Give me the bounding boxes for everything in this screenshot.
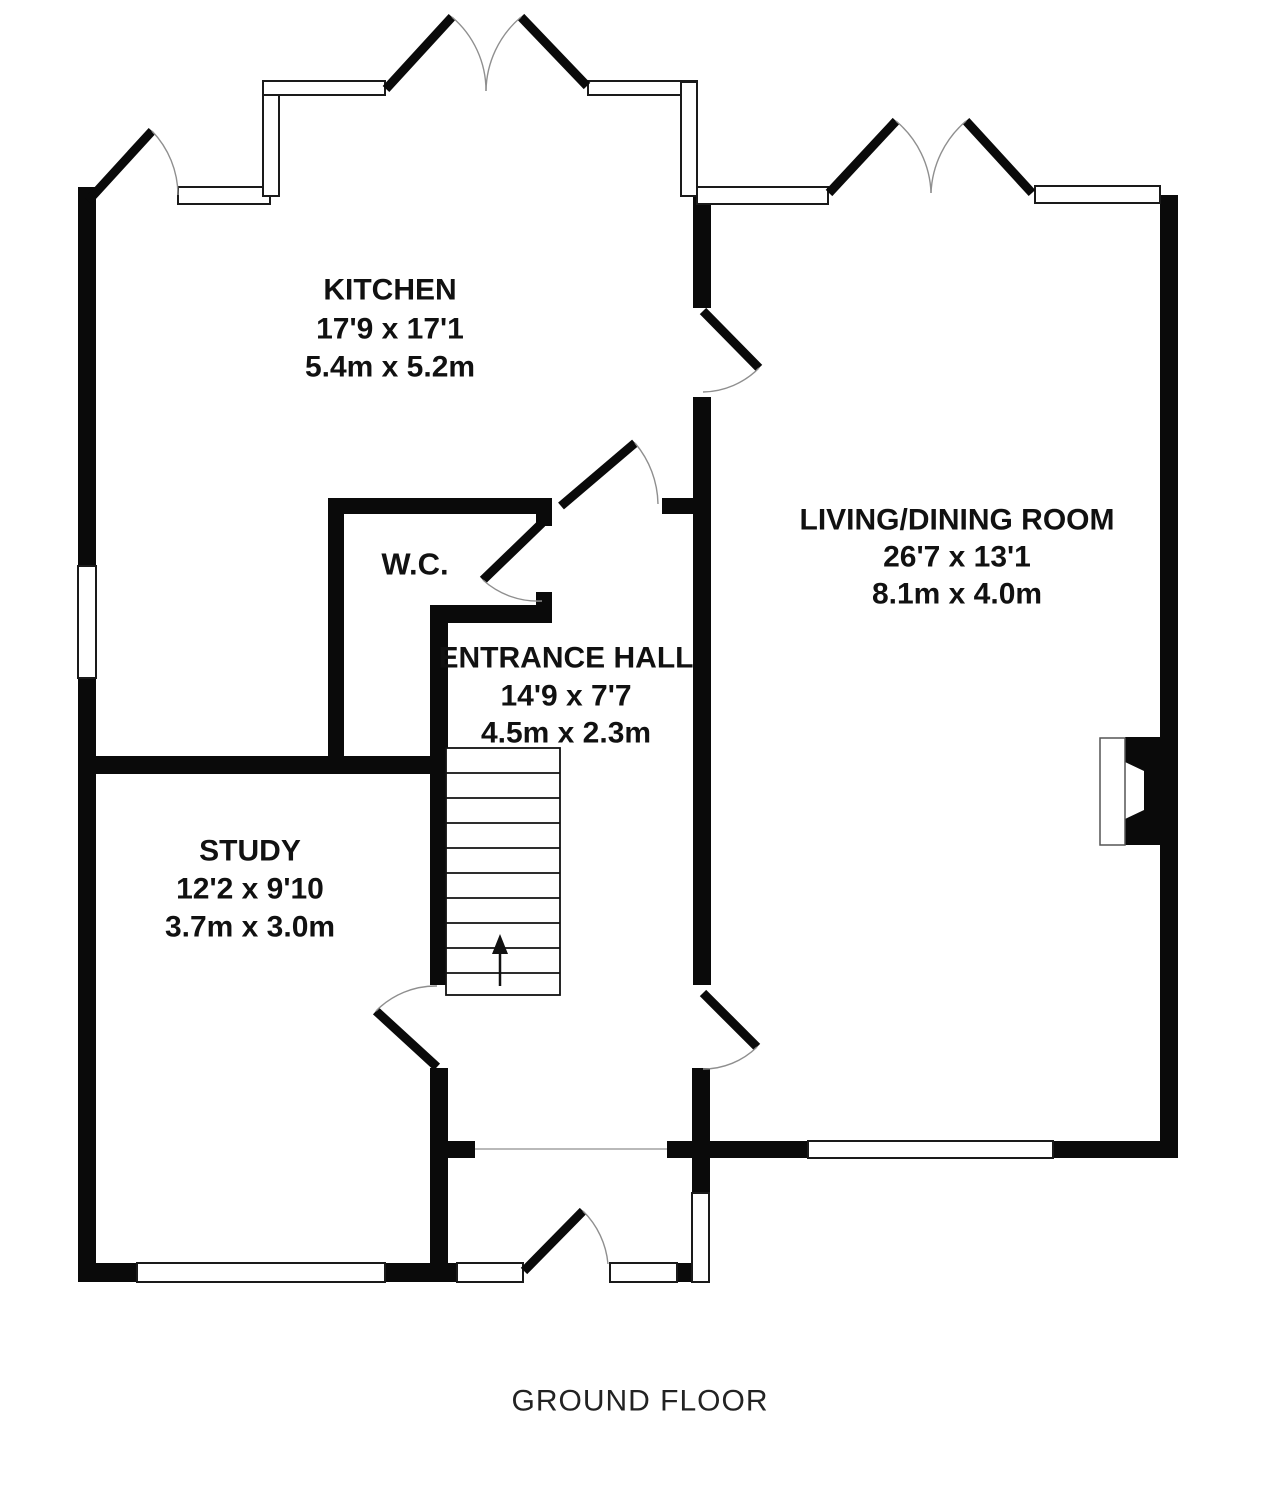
- wall-living-bottom-right: [1053, 1141, 1178, 1158]
- kitchen-size-metric: 5.4m x 5.2m: [305, 351, 475, 384]
- wall-bottom-study-right: [385, 1263, 457, 1282]
- entrance-hall-size-metric: 4.5m x 2.3m: [481, 717, 651, 750]
- wall-living-bottom-left: [693, 1141, 808, 1158]
- wall-kitchen-door-stub: [662, 498, 693, 514]
- wall-left-upper: [78, 187, 96, 566]
- study-label: STUDY 12'2 x 9'10 3.7m x 3.0m: [165, 835, 335, 944]
- wall-divider-upper: [693, 195, 711, 308]
- wc-label: W.C.: [381, 547, 448, 582]
- fireplace-opening: [1125, 762, 1144, 819]
- fireplace-hearth: [1100, 738, 1125, 845]
- living-dining-size-metric: 8.1m x 4.0m: [872, 578, 1042, 611]
- wall-wc-top: [328, 498, 552, 514]
- living-french-doors: [829, 121, 1032, 193]
- living-dining-size-imperial: 26'7 x 13'1: [883, 541, 1031, 574]
- chimney-breast: [1100, 737, 1160, 845]
- floor-plan-drawing: KITCHEN 17'9 x 17'1 5.4m x 5.2m LIVING/D…: [0, 0, 1280, 1503]
- entrance-hall-label: ENTRANCE HALL 14'9 x 7'7 4.5m x 2.3m: [439, 642, 694, 750]
- kitchen-exterior-door: [88, 131, 178, 201]
- wall-porch-stub-right: [667, 1141, 708, 1158]
- wc-door: [483, 523, 542, 601]
- entrance-hall-size-imperial: 14'9 x 7'7: [500, 680, 631, 713]
- wall-bottom-study-left: [96, 1263, 137, 1282]
- window-bay-left-side: [263, 82, 279, 196]
- study-size-metric: 3.7m x 3.0m: [165, 911, 335, 944]
- wall-wc-left: [328, 514, 344, 756]
- wall-hall-left-lower: [430, 1068, 448, 1282]
- kitchen-living-door: [703, 311, 759, 392]
- staircase: [446, 748, 560, 995]
- plan-title: GROUND FLOOR: [511, 1385, 768, 1418]
- study-name: STUDY: [199, 835, 301, 868]
- window-kitchen-left: [78, 566, 96, 678]
- wall-left-lower: [78, 678, 96, 1282]
- study-size-imperial: 12'2 x 9'10: [176, 873, 324, 906]
- floor-plan-page: KITCHEN 17'9 x 17'1 5.4m x 5.2m LIVING/D…: [0, 0, 1280, 1503]
- kitchen-name: KITCHEN: [323, 274, 456, 307]
- window-bay-top-left: [263, 81, 385, 95]
- kitchen-label: KITCHEN 17'9 x 17'1 5.4m x 5.2m: [305, 274, 475, 384]
- wall-hall-corner: [430, 605, 552, 623]
- room-labels: KITCHEN 17'9 x 17'1 5.4m x 5.2m LIVING/D…: [165, 274, 1115, 1418]
- wall-porch-stub-left: [430, 1141, 475, 1158]
- wall-right: [1160, 195, 1178, 1158]
- window-living-top: [1035, 186, 1160, 203]
- window-porch-right: [610, 1263, 677, 1282]
- kitchen-hall-door: [561, 443, 658, 506]
- window-kitchen-top-left: [178, 187, 270, 204]
- living-dining-name: LIVING/DINING ROOM: [800, 504, 1115, 537]
- study-door: [376, 986, 437, 1067]
- window-living-bottom: [808, 1141, 1053, 1158]
- wc-name: W.C.: [381, 547, 448, 582]
- wall-wc-door-stub-bottom: [536, 592, 552, 605]
- entrance-hall-name: ENTRANCE HALL: [439, 642, 694, 675]
- front-door: [524, 1211, 608, 1271]
- window-porch-side: [692, 1193, 709, 1282]
- wall-study-top: [96, 756, 446, 774]
- wall-bottom-porch-corner: [677, 1263, 692, 1282]
- window-kitchen-top-right: [697, 187, 828, 204]
- window-study-bottom: [137, 1263, 385, 1282]
- kitchen-size-imperial: 17'9 x 17'1: [316, 313, 464, 346]
- wall-divider-middle: [693, 397, 711, 985]
- wall-divider-lower: [692, 1068, 710, 1193]
- window-porch-left: [457, 1263, 523, 1282]
- kitchen-french-doors: [386, 17, 587, 91]
- window-bay-right-side: [681, 82, 697, 196]
- living-dining-label: LIVING/DINING ROOM 26'7 x 13'1 8.1m x 4.…: [800, 504, 1115, 611]
- hall-living-door: [703, 993, 757, 1069]
- staircase-outline: [446, 748, 560, 995]
